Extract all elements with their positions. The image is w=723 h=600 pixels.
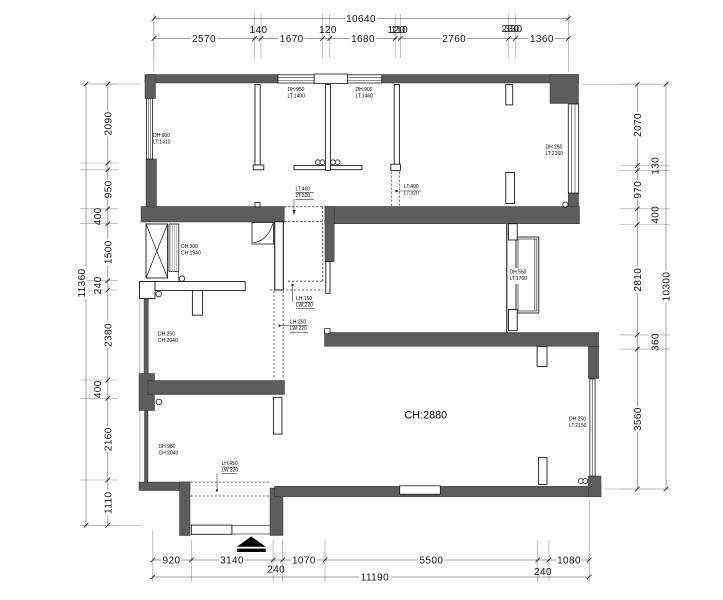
svg-text:11190: 11190 — [361, 573, 389, 584]
svg-text:DH:900: DH:900 — [153, 133, 170, 139]
svg-text:LT:2150: LT:2150 — [569, 423, 587, 429]
svg-text:330: 330 — [505, 24, 523, 35]
svg-text:400: 400 — [93, 380, 104, 398]
svg-text:10640: 10640 — [346, 14, 376, 25]
svg-text:LH:150: LH:150 — [296, 296, 312, 302]
svg-text:240: 240 — [534, 567, 552, 578]
svg-text:DH:300: DH:300 — [181, 244, 198, 250]
svg-text:140: 140 — [250, 25, 268, 36]
svg-text:LH:450: LH:450 — [222, 461, 238, 467]
svg-text:130: 130 — [651, 157, 662, 175]
svg-text:2160: 2160 — [103, 427, 114, 451]
svg-text:CH:1940: CH:1940 — [181, 250, 201, 256]
svg-text:2070: 2070 — [633, 113, 644, 137]
svg-text:1080: 1080 — [557, 556, 581, 567]
svg-text:LT:2160: LT:2160 — [546, 151, 564, 157]
svg-text:1110: 1110 — [103, 491, 114, 513]
svg-text:2380: 2380 — [103, 323, 114, 347]
svg-text:LW:220: LW:220 — [222, 467, 239, 473]
svg-text:3140: 3140 — [220, 556, 244, 567]
svg-text:11360: 11360 — [77, 268, 88, 297]
svg-text:DH:250: DH:250 — [158, 332, 175, 338]
svg-text:1360: 1360 — [530, 34, 554, 45]
svg-text:1500: 1500 — [103, 240, 114, 264]
svg-text:920: 920 — [163, 556, 181, 567]
svg-text:DH:900: DH:900 — [356, 87, 373, 93]
svg-text:LT:400: LT:400 — [404, 184, 419, 190]
svg-text:2570: 2570 — [192, 34, 216, 45]
svg-text:1670: 1670 — [280, 34, 304, 45]
svg-text:CH:2040: CH:2040 — [158, 338, 178, 344]
svg-text:LT:320: LT:320 — [296, 193, 311, 199]
svg-text:LW:220: LW:220 — [296, 302, 313, 308]
svg-text:120: 120 — [319, 25, 337, 36]
svg-text:400: 400 — [93, 207, 104, 225]
svg-text:950: 950 — [103, 180, 114, 198]
svg-text:10300: 10300 — [662, 272, 673, 302]
svg-text:400: 400 — [651, 206, 662, 224]
svg-text:240: 240 — [267, 565, 285, 576]
svg-text:970: 970 — [633, 181, 644, 199]
svg-text:LT:1460: LT:1460 — [356, 93, 374, 99]
svg-text:DH:980: DH:980 — [159, 444, 176, 450]
svg-text:LT:1400: LT:1400 — [288, 93, 306, 99]
svg-text:LT:1760: LT:1760 — [510, 276, 528, 282]
svg-text:5500: 5500 — [419, 556, 443, 567]
svg-text:LW:220: LW:220 — [290, 326, 307, 332]
svg-text:CH:2040: CH:2040 — [159, 450, 179, 456]
svg-text:2090: 2090 — [103, 112, 114, 136]
svg-text:360: 360 — [651, 333, 662, 351]
svg-text:240: 240 — [93, 276, 104, 294]
svg-text:DH:550: DH:550 — [510, 270, 527, 276]
svg-text:LT:400: LT:400 — [296, 187, 311, 193]
svg-text:1070: 1070 — [292, 556, 316, 567]
svg-text:3560: 3560 — [633, 407, 644, 431]
svg-text:CH:2880: CH:2880 — [405, 410, 448, 422]
svg-text:DH:250: DH:250 — [569, 417, 586, 423]
svg-text:DH:250: DH:250 — [546, 145, 563, 151]
svg-text:LT:1410: LT:1410 — [153, 139, 171, 145]
svg-text:2760: 2760 — [442, 34, 466, 45]
svg-text:2810: 2810 — [633, 268, 644, 292]
svg-text:110: 110 — [391, 25, 408, 36]
svg-text:LH:250: LH:250 — [290, 320, 306, 326]
svg-text:1680: 1680 — [351, 34, 375, 45]
svg-text:DH:950: DH:950 — [288, 87, 305, 93]
